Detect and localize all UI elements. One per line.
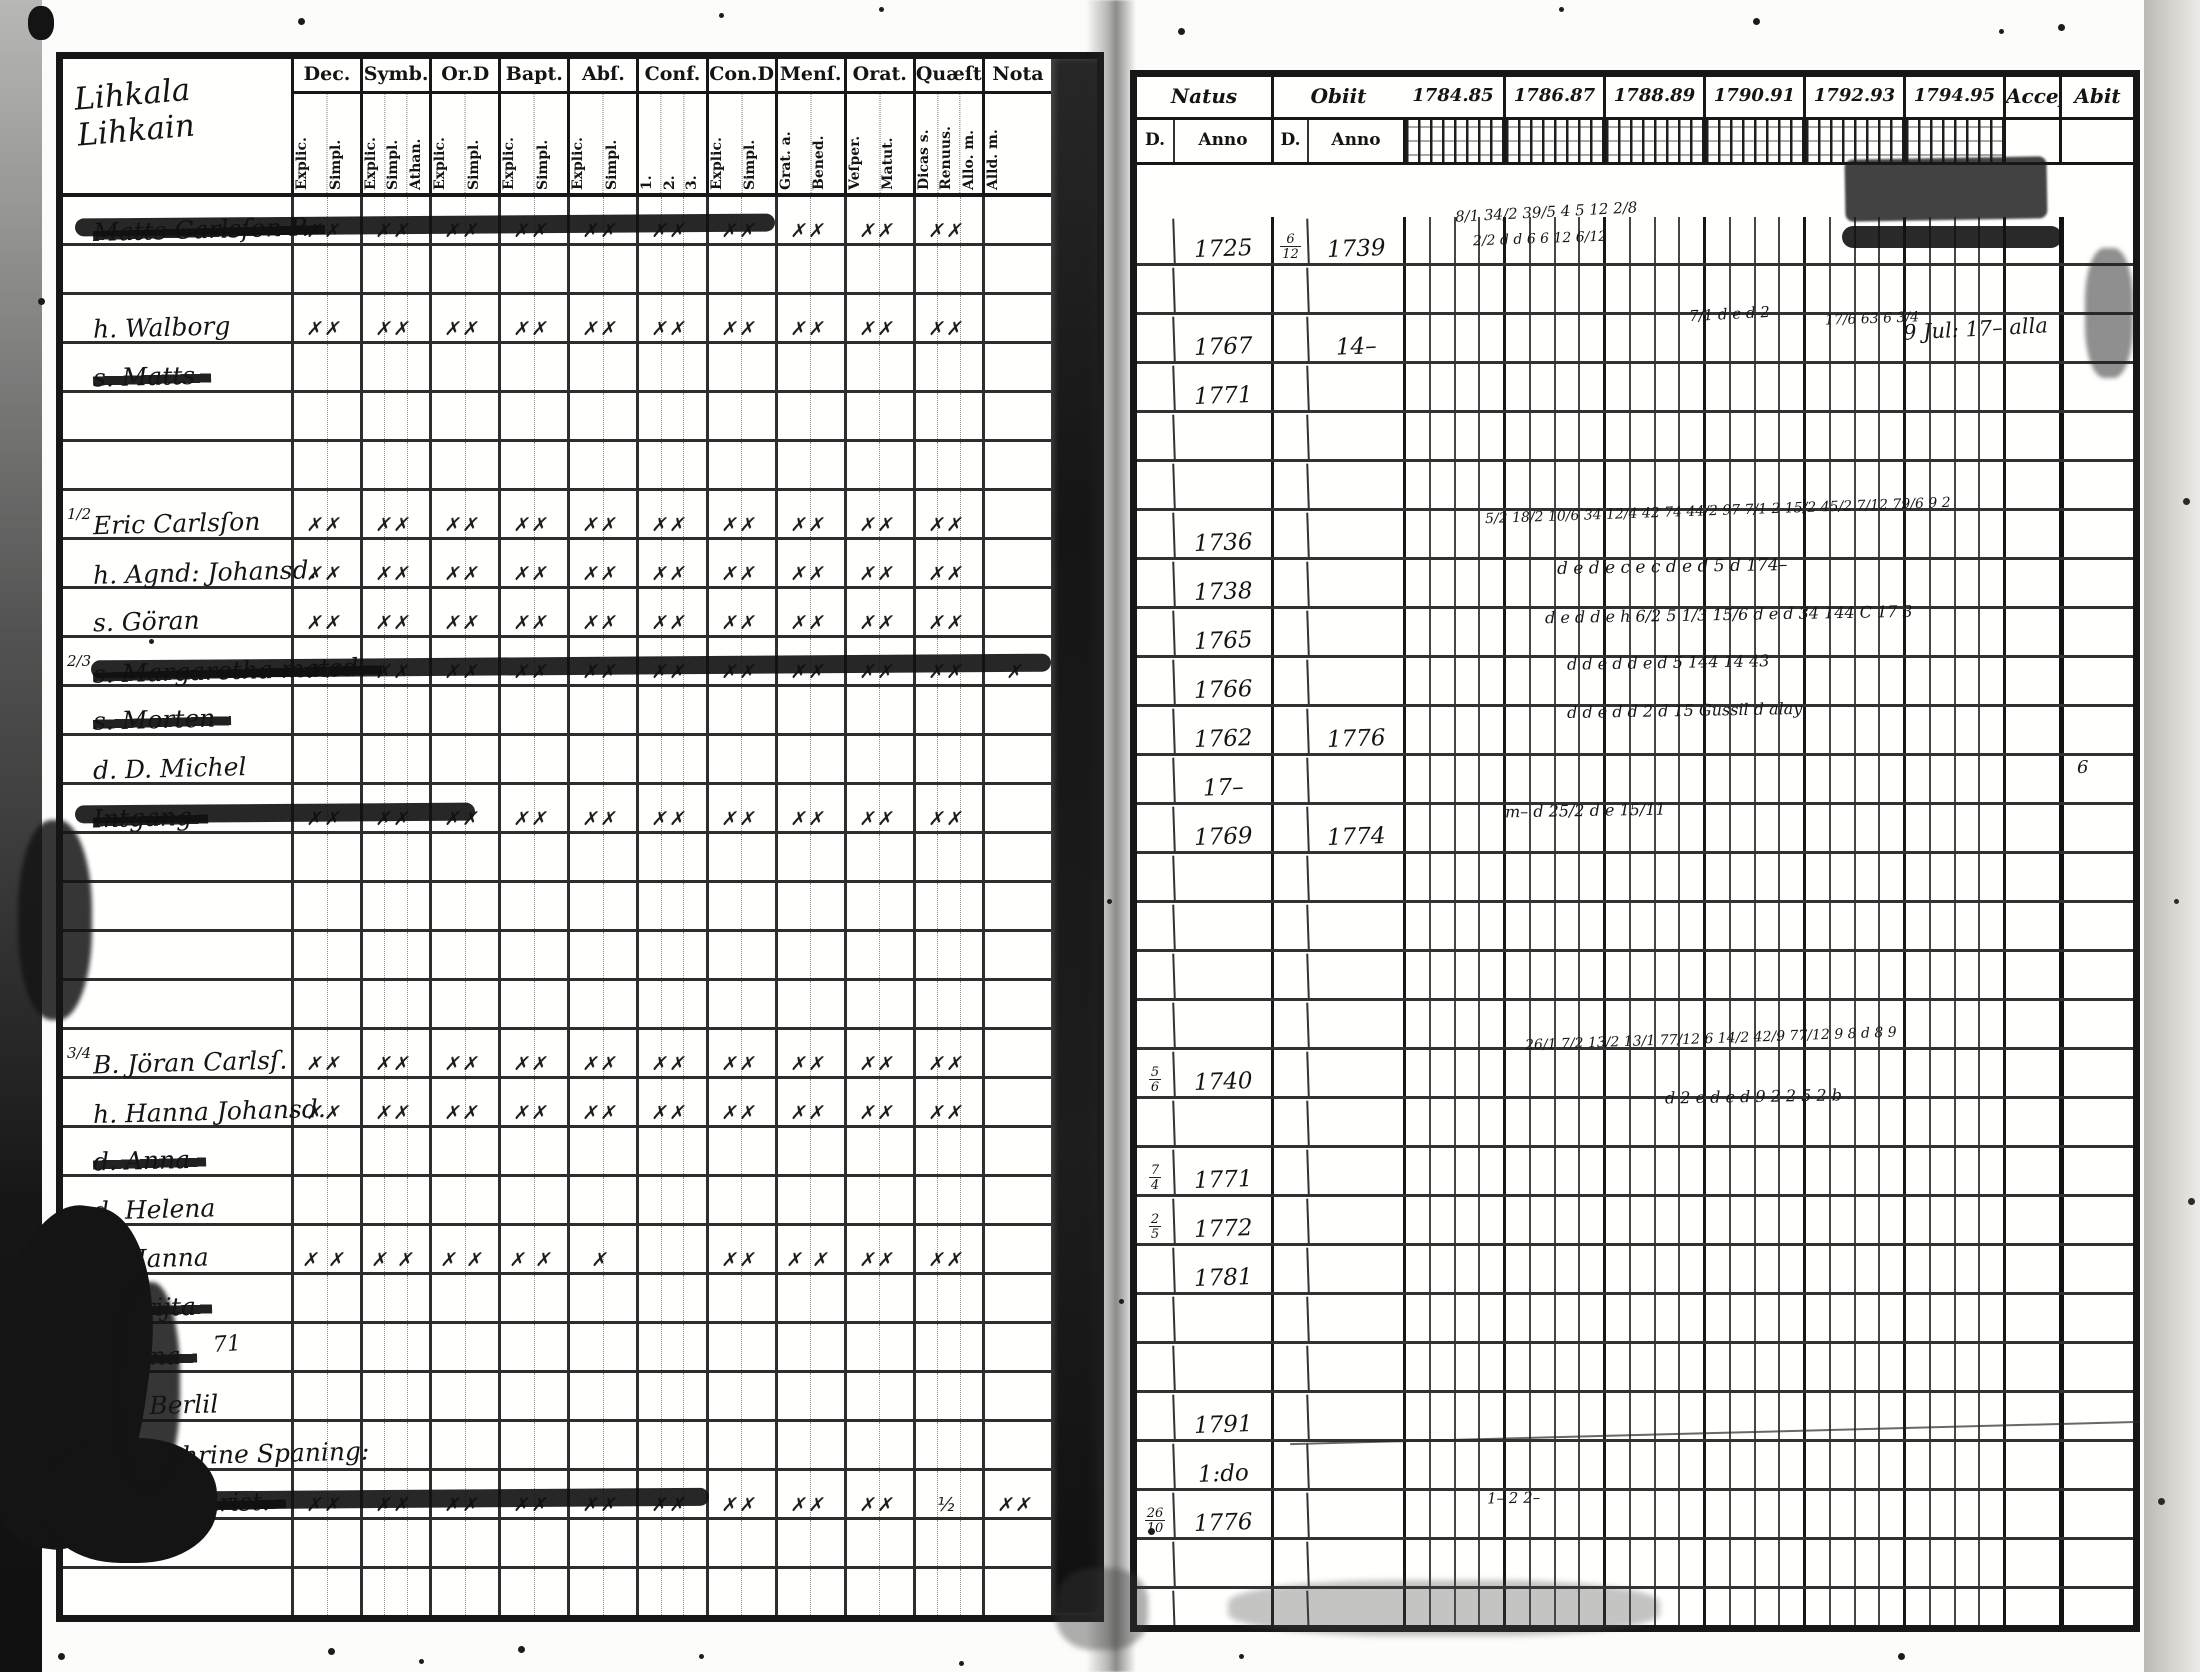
- natus-year-cell: 1765: [1172, 607, 1272, 656]
- mark-subcell: [709, 1569, 742, 1615]
- year-grid-subcell: [1678, 413, 1703, 459]
- year-grid-subcell: [1606, 1540, 1629, 1586]
- mark-subcell: [639, 883, 660, 929]
- year-grid-cell: [1403, 903, 1503, 949]
- mark-cell: ✗✗: [844, 1226, 913, 1272]
- mark-cell: ✗✗: [291, 1079, 360, 1125]
- person-name: d. Brijta: [93, 1293, 213, 1321]
- year-grid-subcell: [1529, 903, 1554, 949]
- mark-cell: [360, 1373, 429, 1419]
- year-grid-cell: [1903, 1148, 2003, 1194]
- obiit-day-cell: [1271, 364, 1307, 410]
- communion-mark: ✗✗: [566, 785, 640, 831]
- year-grid-subcell: [1706, 560, 1729, 606]
- mark-cell: [567, 1422, 636, 1468]
- column-sublabel: Simpl.: [466, 94, 499, 193]
- name-cell: [63, 1520, 291, 1566]
- mark-subcell: [985, 344, 1051, 390]
- year-grid-subcell: [1406, 756, 1429, 802]
- year-grid-subcell: [1454, 854, 1479, 900]
- mark-subcell: [407, 1128, 429, 1174]
- communion-mark: ✗✗: [359, 1030, 433, 1076]
- year-grid-cell: [1603, 756, 1703, 802]
- mark-subcell: [432, 1128, 465, 1174]
- mark-subcell: [847, 1324, 880, 1370]
- year-grid-cell: [1403, 1099, 1503, 1145]
- year-grid-subcell: [1629, 413, 1654, 459]
- year-grid-subcell: [1429, 1050, 1454, 1096]
- year-grid-subcell: [1978, 707, 2003, 753]
- communion-mark: ✗✗: [705, 491, 779, 537]
- year-grid-subcell: [1878, 854, 1903, 900]
- mark-cell: [636, 687, 705, 733]
- year-grid-subcell: [1806, 413, 1829, 459]
- mark-subcell: [709, 393, 742, 439]
- column-sublabels: Explic.Simpl.: [570, 94, 636, 193]
- mark-subcell: [960, 1569, 982, 1615]
- mark-cell: [775, 1324, 844, 1370]
- register-row: [1137, 952, 2133, 1001]
- mark-cell: [567, 1373, 636, 1419]
- mark-cell: [844, 442, 913, 488]
- mark-subcell: [432, 1324, 465, 1370]
- year-grid-subcell: [1754, 511, 1779, 557]
- mark-subcell: [709, 1324, 742, 1370]
- year-grid-cell: [1903, 1491, 2003, 1537]
- year-grid-subcell: [1954, 364, 1979, 410]
- mark-subcell: [363, 1569, 384, 1615]
- register-row: 17691774: [1137, 805, 2133, 854]
- year-grid-subcell: [1678, 217, 1703, 263]
- year-grid-subcell: [1406, 266, 1429, 312]
- year-grid-subcell: [1854, 1246, 1879, 1292]
- column-sublabel: Alld. m.: [985, 94, 1051, 193]
- abiit-subheader: [2059, 120, 2133, 162]
- year-grid-subcell: [1678, 1540, 1703, 1586]
- mark-subcell: [985, 932, 1051, 978]
- mark-subcell: [327, 736, 361, 782]
- year-grid-subcell: [1829, 1148, 1854, 1194]
- year-grid-cell: [1903, 511, 2003, 557]
- mark-cell: [429, 1373, 498, 1419]
- year-grid-subcell: [1554, 560, 1579, 606]
- year-grid-subcell: [1429, 364, 1454, 410]
- year-grid-subcell: [1678, 903, 1703, 949]
- mark-subcell: [985, 834, 1051, 880]
- year-grid-subcell: [1478, 511, 1503, 557]
- mark-subcell: [294, 1373, 327, 1419]
- natus-day-cell: [1137, 952, 1173, 998]
- year-grid-subcell: [1478, 707, 1503, 753]
- mark-cell: [775, 1177, 844, 1223]
- obiit-year-cell: [1306, 950, 1404, 999]
- year-grid-subcell: [1929, 854, 1954, 900]
- year-grid-cell: [1803, 1393, 1903, 1439]
- communion-mark: ✗✗: [774, 1079, 848, 1125]
- year-grid-subcell: [1829, 854, 1854, 900]
- communion-mark: ✗✗: [705, 1079, 779, 1125]
- communion-mark: ✗✗: [843, 197, 917, 243]
- column-sublabel: Renuus.: [938, 94, 960, 193]
- mark-subcell: [465, 1373, 499, 1419]
- year-grid-subcell: [1729, 658, 1754, 704]
- year-grid-subcell: [1554, 854, 1579, 900]
- mark-subcell: [501, 687, 534, 733]
- natus-year-cell: 1791: [1172, 1391, 1272, 1440]
- mark-subcell: [847, 834, 880, 880]
- accessit-cell: [2003, 560, 2059, 606]
- mark-subcell: [778, 393, 811, 439]
- obiit-year-cell: [1306, 1538, 1404, 1587]
- year-grid-subcell: [1506, 1197, 1529, 1243]
- mark-subcell: [639, 393, 660, 439]
- natus-day-cell: [1137, 1001, 1173, 1047]
- year-grid-cell: [1703, 658, 1803, 704]
- obiit-year-cell: [1306, 264, 1404, 313]
- year-grid-subcell: [1606, 952, 1629, 998]
- mark-subcell: [810, 932, 844, 978]
- obiit-year-cell: [1306, 1244, 1404, 1293]
- column-group-ord: Or.DExplic.Simpl.: [429, 59, 498, 193]
- year-grid-subcell: [1978, 217, 2003, 263]
- year-grid-subcell: [1906, 756, 1929, 802]
- year-grid-subcell: [1529, 1099, 1554, 1145]
- communion-mark: ✗✗: [912, 1030, 986, 1076]
- obiit-year-cell: [1306, 1489, 1404, 1538]
- year-grid-subcell: [1906, 805, 1929, 851]
- mark-cell: [291, 1324, 360, 1370]
- accessit-cell: [2003, 756, 2059, 802]
- mark-cell: ✗✗: [429, 295, 498, 341]
- mark-cell: [982, 785, 1051, 831]
- year-grid-subcell: [1829, 1442, 1854, 1488]
- mark-cell: [498, 1275, 567, 1321]
- mark-cell: [844, 883, 913, 929]
- communion-mark: ✗✗: [566, 540, 640, 586]
- mark-subcell: [847, 687, 880, 733]
- year-grid-cell: [1703, 1197, 1803, 1243]
- year-grid-cell: [1803, 413, 1903, 459]
- year-grid-subcell: [1506, 1491, 1529, 1537]
- mark-subcell: [501, 246, 534, 292]
- mark-subcell: [661, 981, 683, 1027]
- obiit-year-cell: [1306, 1391, 1404, 1440]
- register-row: [63, 393, 1097, 442]
- year-grid-subcell: [1954, 805, 1979, 851]
- year-grid-subcell: [1706, 1442, 1729, 1488]
- year-grid-subcell: [1506, 364, 1529, 410]
- mark-cell: [360, 1128, 429, 1174]
- mark-subcell: [879, 1520, 913, 1566]
- year-grid-subcell: [1406, 511, 1429, 557]
- year-subcolumn-stripes: [1703, 120, 1803, 162]
- natus-day-cell: [1137, 854, 1173, 900]
- mark-cell: [567, 1128, 636, 1174]
- name-cell: s. Matts: [63, 344, 291, 390]
- communion-mark: ✗✗: [497, 1079, 571, 1125]
- year-grid-subcell: [1954, 1295, 1979, 1341]
- communion-mark: ✗ ✗: [497, 1226, 571, 1272]
- column-sublabel: Matut.: [880, 94, 913, 193]
- mark-cell: [982, 687, 1051, 733]
- column-sublabels: Dicas s.Renuus.Allo. m.: [916, 94, 982, 193]
- year-grid-subcell: [1906, 413, 1929, 459]
- year-grid-subcell: [1878, 315, 1903, 361]
- year-grid-subcell: [1806, 1442, 1829, 1488]
- obiit-day-cell: [1271, 609, 1307, 655]
- mark-cell: ✗✗: [498, 1079, 567, 1125]
- year-grid-cell: [1403, 462, 1503, 508]
- year-grid-subcell: [1854, 1001, 1879, 1047]
- year-grid-cell: [1603, 952, 1703, 998]
- column-sublabel: Bened.: [811, 94, 844, 193]
- mark-cell: ✗✗: [498, 295, 567, 341]
- communion-mark: ✗✗: [635, 785, 709, 831]
- mark-cell: [706, 1177, 775, 1223]
- year-grid-subcell: [1678, 854, 1703, 900]
- natus-day-cell: [1137, 1442, 1173, 1488]
- mark-subcell: [432, 687, 465, 733]
- mark-cell: [775, 442, 844, 488]
- year-grid-cell: [1603, 1540, 1703, 1586]
- register-row: 17621776: [1137, 707, 2133, 756]
- abiit-cell: [2059, 1099, 2133, 1145]
- natus-day-cell: [1137, 1099, 1173, 1145]
- natus-day-subheader: D.: [1137, 120, 1173, 162]
- communion-mark: ✗✗: [843, 491, 917, 537]
- year-grid-subcell: [1678, 315, 1703, 361]
- year-grid-subcell: [1529, 609, 1554, 655]
- year-grid-subcell: [1478, 952, 1503, 998]
- mark-cell: [360, 687, 429, 733]
- mark-subcell: [570, 1520, 603, 1566]
- year-grid-subcell: [1506, 952, 1529, 998]
- mark-subcell: [501, 1324, 534, 1370]
- year-grid-subcell: [1606, 1442, 1629, 1488]
- mark-cell: [429, 1324, 498, 1370]
- year-grid-subcell: [1878, 1295, 1903, 1341]
- mark-subcell: [683, 736, 705, 782]
- mark-subcell: [916, 736, 937, 782]
- mark-subcell: [709, 344, 742, 390]
- year-grid-subcell: [1629, 903, 1654, 949]
- mark-cell: [636, 1226, 705, 1272]
- year-grid-cell: [1503, 560, 1603, 606]
- year-grid-subcell: [1478, 364, 1503, 410]
- year-grid-subcell: [1954, 1050, 1979, 1096]
- communion-mark: ✗✗: [843, 540, 917, 586]
- communion-mark: ✗✗: [359, 295, 433, 341]
- mark-subcell: [778, 1177, 811, 1223]
- mark-subcell: [879, 1275, 913, 1321]
- year-grid-subcell: [1478, 805, 1503, 851]
- mark-cell: [706, 883, 775, 929]
- year-grid-cell: [1703, 413, 1803, 459]
- obiit-year-cell: [1306, 656, 1404, 705]
- year-grid-subcell: [1406, 413, 1429, 459]
- year-grid-subcell: [1654, 1148, 1679, 1194]
- year-grid-cell: [1403, 1050, 1503, 1096]
- mark-cell: ✗ ✗: [360, 1226, 429, 1272]
- year-grid-subcell: [1706, 413, 1729, 459]
- year-grid-subcell: [1478, 658, 1503, 704]
- mark-subcell: [501, 1275, 534, 1321]
- mark-cell: [982, 1079, 1051, 1125]
- communion-mark: ✗✗: [497, 295, 571, 341]
- year-grid-subcell: [1829, 1589, 1854, 1632]
- abiit-column-header: Abit: [2059, 77, 2133, 117]
- year-grid-cell: [1503, 315, 1603, 361]
- mark-cell: ✗✗: [360, 1079, 429, 1125]
- year-grid-subcell: [1454, 609, 1479, 655]
- year-grid-subcell: [1654, 217, 1679, 263]
- register-row: ex. Cathrine Spaning:: [63, 1422, 1097, 1471]
- year-grid-subcell: [1729, 1540, 1754, 1586]
- year-grid-subcell: [1778, 217, 1803, 263]
- communion-mark: ✗✗: [428, 1079, 502, 1125]
- column-group-men: Menſ.Grat. a.Bened.: [775, 59, 844, 193]
- year-grid-cell: [1703, 1589, 1803, 1632]
- year-grid-subcell: [1878, 1589, 1903, 1632]
- mark-cell: [982, 246, 1051, 292]
- year-grid-subcell: [1806, 1491, 1829, 1537]
- year-grid-cell: [1903, 217, 2003, 263]
- mark-cell: [982, 344, 1051, 390]
- mark-subcell: [639, 1373, 660, 1419]
- year-grid-subcell: [1406, 952, 1429, 998]
- mark-cell: [498, 442, 567, 488]
- mark-subcell: [960, 246, 982, 292]
- mark-subcell: [534, 834, 568, 880]
- mark-subcell: [741, 736, 775, 782]
- register-row: 1738: [1137, 560, 2133, 609]
- year-grid-cell: [1503, 707, 1603, 753]
- obiit-year-cell: 1774: [1306, 803, 1404, 852]
- mark-subcell: [570, 344, 603, 390]
- mark-subcell: [407, 1177, 429, 1223]
- year-grid-subcell: [1806, 315, 1829, 361]
- year-grid-subcell: [1606, 854, 1629, 900]
- communion-mark: ✗✗: [912, 540, 986, 586]
- mark-subcell: [639, 981, 660, 1027]
- year-grid-subcell: [1754, 756, 1779, 802]
- year-grid-subcell: [1978, 1344, 2003, 1390]
- mark-subcell: [501, 442, 534, 488]
- column-label: Symb.: [363, 59, 429, 94]
- year-grid-subcell: [1429, 1001, 1454, 1047]
- mark-subcell: [916, 442, 937, 488]
- year-grid-subcell: [1778, 1148, 1803, 1194]
- year-grid-cell: [1603, 1246, 1703, 1292]
- mark-subcell: [916, 1275, 937, 1321]
- year-grid-subcell: [1806, 658, 1829, 704]
- register-row: h. Hanna Johansd.✗✗✗✗✗✗✗✗✗✗✗✗✗✗✗✗✗✗✗✗: [63, 1079, 1097, 1128]
- year-grid-cell: [1803, 903, 1903, 949]
- year-grid-subcell: [1978, 854, 2003, 900]
- year-grid-subcell: [1729, 609, 1754, 655]
- mark-subcell: [778, 1422, 811, 1468]
- year-grid-cell: [1403, 560, 1503, 606]
- mark-cell: [636, 1520, 705, 1566]
- mark-subcell: [937, 736, 959, 782]
- obiit-year-cell: [1306, 1342, 1404, 1391]
- obiit-year-cell: [1306, 852, 1404, 901]
- year-grid-subcell: [1829, 1001, 1854, 1047]
- mark-cell: [706, 442, 775, 488]
- year-grid-subcell: [1706, 952, 1729, 998]
- mark-subcell: [327, 344, 361, 390]
- year-grid-subcell: [1506, 1393, 1529, 1439]
- communion-mark: ✗✗: [774, 491, 848, 537]
- mark-subcell: [847, 442, 880, 488]
- year-grid-subcell: [1978, 1050, 2003, 1096]
- year-grid-subcell: [1678, 1442, 1703, 1488]
- column-sublabel: Simpl.: [742, 94, 775, 193]
- year-grid-cell: [1903, 805, 2003, 851]
- column-group-ab: Abſ.Explic.Simpl.: [567, 59, 636, 193]
- year-grid-subcell: [1554, 315, 1579, 361]
- year-grid-subcell: [1806, 364, 1829, 410]
- mark-subcell: [879, 981, 913, 1027]
- mark-subcell: [879, 442, 913, 488]
- year-grid-cell: [1503, 854, 1603, 900]
- year-grid-subcell: [1529, 1393, 1554, 1439]
- mark-cell: [982, 1520, 1051, 1566]
- year-grid-subcell: [1678, 1344, 1703, 1390]
- year-grid-subcell: [1578, 805, 1603, 851]
- year-grid-subcell: [1606, 462, 1629, 508]
- year-grid-subcell: [1406, 560, 1429, 606]
- mark-subcell: [407, 1520, 429, 1566]
- mark-subcell: [810, 1275, 844, 1321]
- natus-day-cell: [1137, 1540, 1173, 1586]
- year-grid-cell: [1703, 1491, 1803, 1537]
- register-row: d. D. Michel: [63, 736, 1097, 785]
- mark-cell: ✗✗: [913, 295, 982, 341]
- mark-subcell: [432, 883, 465, 929]
- year-grid-subcell: [1929, 1491, 1954, 1537]
- year-grid-subcell: [1778, 1295, 1803, 1341]
- register-row: [1137, 1295, 2133, 1344]
- mark-cell: [498, 1177, 567, 1223]
- mark-cell: [913, 981, 982, 1027]
- mark-cell: ✗ ✗: [775, 1226, 844, 1272]
- year-grid-subcell: [1529, 1589, 1554, 1632]
- year-grid-subcell: [1554, 1295, 1579, 1341]
- year-grid-subcell: [1754, 952, 1779, 998]
- year-grid-subcell: [1554, 511, 1579, 557]
- accessit-column-header: Acceſ: [2003, 77, 2059, 117]
- year-grid-subcell: [1878, 1442, 1903, 1488]
- column-label: Or.D: [432, 59, 498, 94]
- year-grid-cell: [1403, 511, 1503, 557]
- column-sublabel: 3.: [684, 94, 705, 193]
- register-row: d. Helena: [63, 1177, 1097, 1226]
- mark-subcell: [407, 246, 429, 292]
- mark-subcell: [465, 1275, 499, 1321]
- year-grid-subcell: [1706, 903, 1729, 949]
- year-grid-subcell: [1429, 560, 1454, 606]
- year-grid-cell: [1903, 364, 2003, 410]
- register-row: s. Matts: [63, 344, 1097, 393]
- mark-cell: ✗✗: [706, 785, 775, 831]
- communion-mark: ✗✗: [912, 491, 986, 537]
- register-row: 1/2Eric Carlsſon✗✗✗✗✗✗✗✗✗✗✗✗✗✗✗✗✗✗✗✗: [63, 491, 1097, 540]
- mark-subcell: [534, 393, 568, 439]
- communion-mark: ✗✗: [705, 540, 779, 586]
- year-grid-cell: [1903, 854, 2003, 900]
- year-grid-subcell: [1706, 1393, 1729, 1439]
